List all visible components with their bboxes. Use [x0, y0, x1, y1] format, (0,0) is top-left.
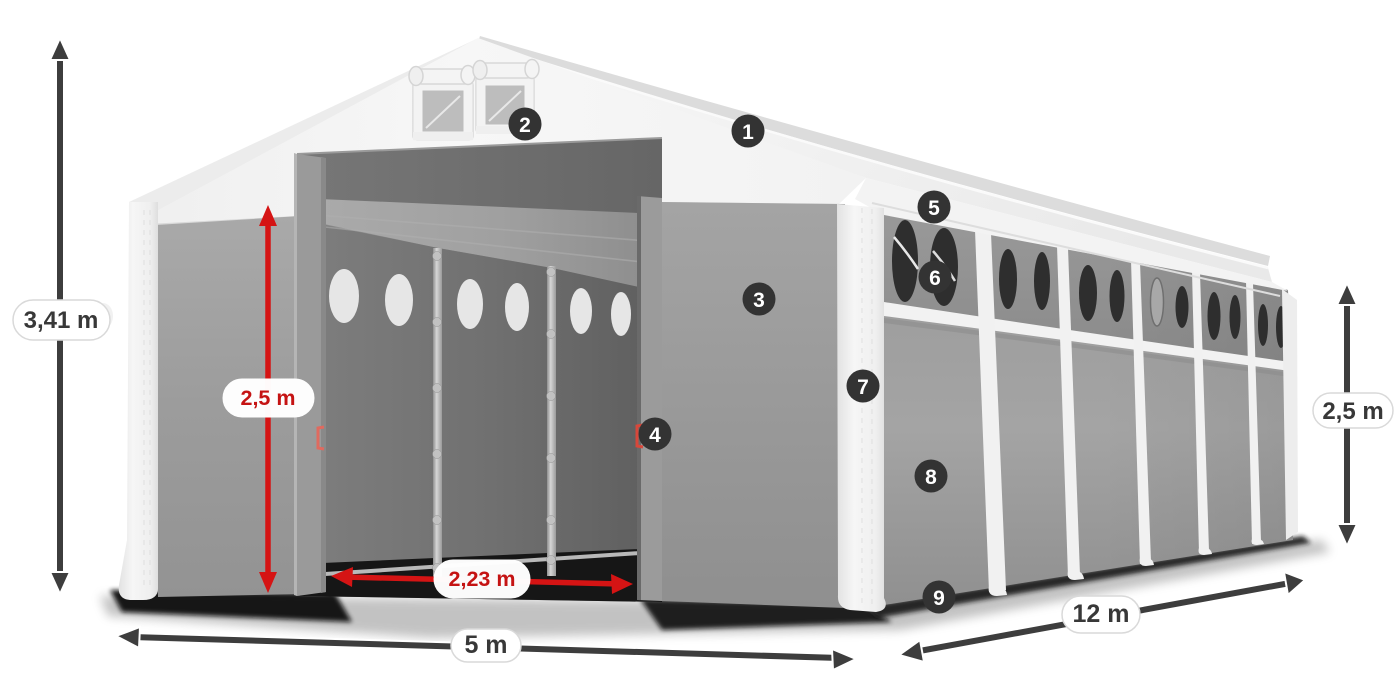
svg-text:1: 1	[742, 121, 754, 144]
svg-text:2: 2	[519, 114, 531, 137]
svg-text:12 m: 12 m	[1073, 600, 1130, 628]
svg-text:6: 6	[929, 267, 941, 290]
svg-text:3,41 m: 3,41 m	[24, 307, 99, 334]
svg-text:2,5 m: 2,5 m	[1322, 398, 1383, 425]
svg-text:8: 8	[925, 466, 937, 489]
svg-text:5 m: 5 m	[464, 631, 507, 659]
svg-text:9: 9	[933, 587, 945, 610]
svg-text:2,5 m: 2,5 m	[241, 386, 296, 410]
svg-text:2,23 m: 2,23 m	[449, 567, 516, 591]
svg-text:7: 7	[857, 376, 869, 399]
svg-text:3: 3	[753, 289, 765, 312]
svg-text:5: 5	[928, 197, 940, 220]
svg-text:4: 4	[649, 424, 661, 447]
